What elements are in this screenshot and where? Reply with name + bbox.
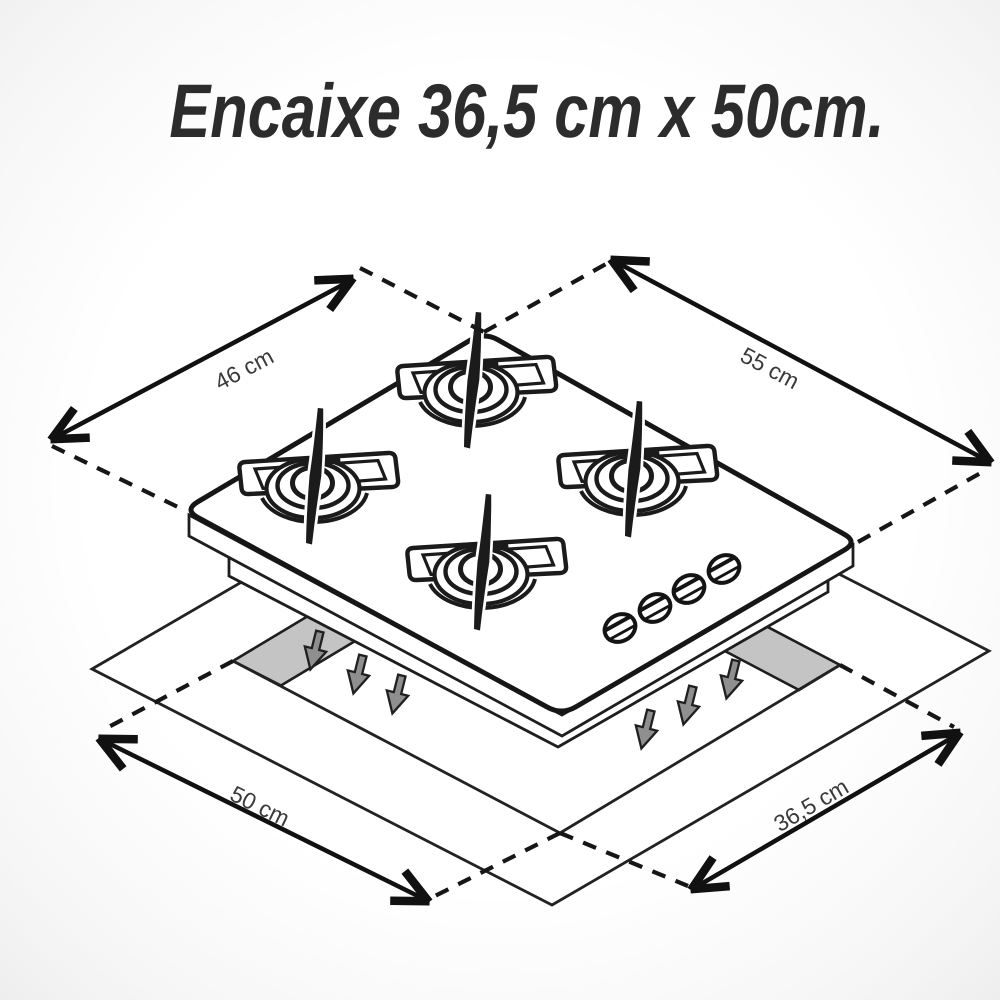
svg-text:Encaixe 36,5 cm x 50cm.: Encaixe 36,5 cm x 50cm. [169, 69, 884, 154]
svg-text:55 cm: 55 cm [736, 342, 803, 395]
svg-text:50 cm: 50 cm [226, 780, 294, 831]
